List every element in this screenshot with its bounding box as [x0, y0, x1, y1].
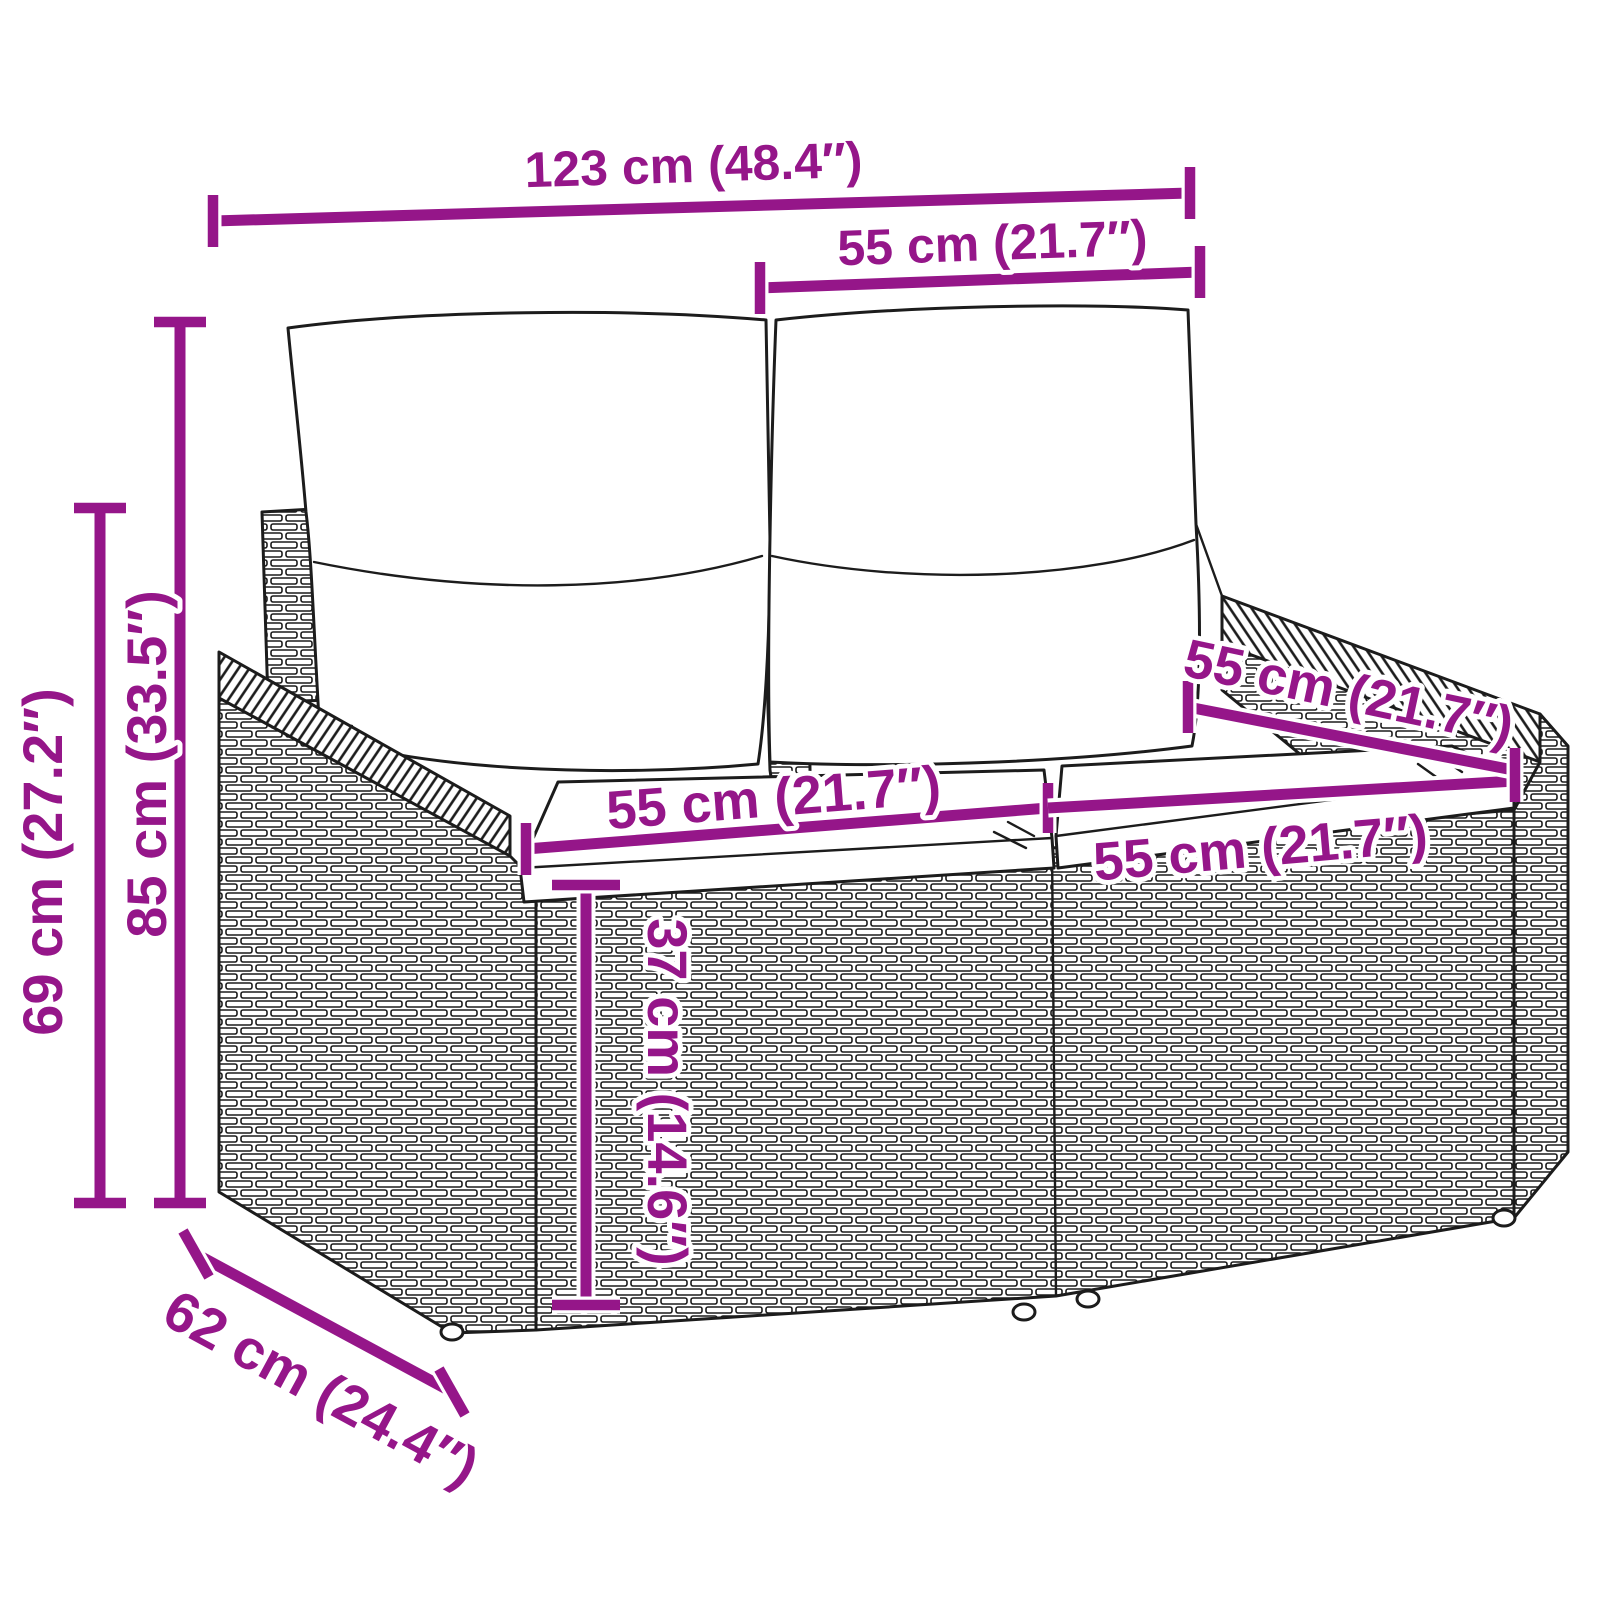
product-dimension-image: 123 cm (48.4″) 55 cm (21.7″) 69 cm (27.2… — [0, 0, 1600, 1600]
sofa-foot-2 — [1013, 1304, 1035, 1320]
dimension-diagram-svg: 123 cm (48.4″) 55 cm (21.7″) 69 cm (27.2… — [0, 0, 1600, 1600]
dim-back-width: 55 cm (21.7″) — [760, 210, 1200, 314]
sofa-foot-4 — [1493, 1210, 1515, 1226]
armrest-left-body — [219, 698, 536, 1333]
sofa-foot-1 — [441, 1324, 463, 1340]
dim-label-overall-width: 123 cm (48.4″) — [524, 132, 864, 199]
dim-label-seat-height: 37 cm (14.6″) — [636, 918, 699, 1265]
dim-label-total-height: 85 cm (33.5″) — [115, 590, 178, 937]
back-cushion-left — [288, 312, 770, 770]
dim-label-back-width: 55 cm (21.7″) — [836, 210, 1148, 277]
back-cushion-right — [769, 306, 1200, 765]
dim-label-side-height: 69 cm (27.2″) — [11, 688, 74, 1035]
dim-side-height: 69 cm (27.2″) — [11, 508, 126, 1203]
dim-total-height: 85 cm (33.5″) — [115, 322, 206, 1203]
sofa-foot-3 — [1077, 1291, 1099, 1307]
